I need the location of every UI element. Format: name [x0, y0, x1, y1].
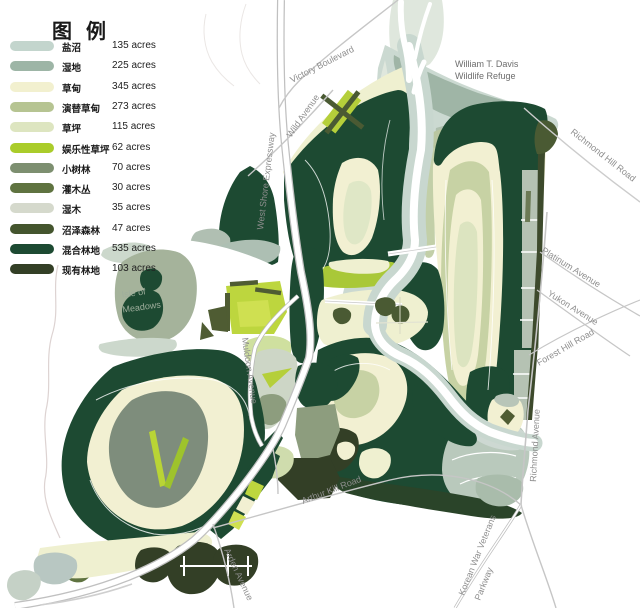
svg-text:William T. Davis: William T. Davis: [455, 59, 519, 69]
svg-text:Wildlife Refuge: Wildlife Refuge: [455, 71, 516, 81]
